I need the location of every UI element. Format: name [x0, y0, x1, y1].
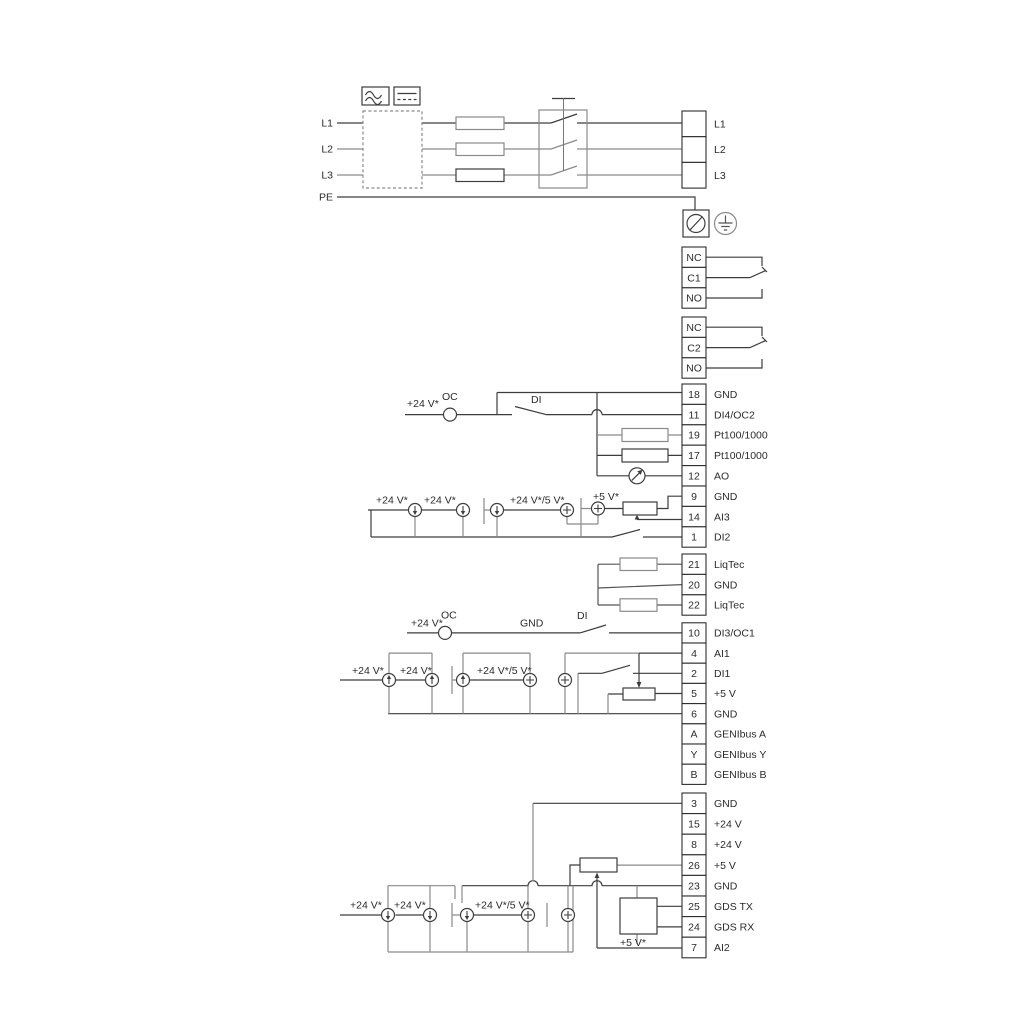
label-plus24v: +24 V* — [376, 495, 408, 507]
io3-wiring — [340, 803, 682, 952]
terminal-label: +5 V — [714, 860, 736, 872]
relay-terminal-number: C1 — [687, 272, 701, 284]
power-output-cell — [682, 111, 706, 137]
power-input-label: L2 — [321, 144, 333, 156]
terminal-label: DI2 — [714, 532, 731, 544]
wire-l2-l3 — [337, 140, 682, 175]
power-output-label: L1 — [714, 119, 726, 131]
dc-box-icon — [394, 87, 420, 105]
fuse-icon — [456, 117, 504, 130]
pe-terminal — [683, 210, 737, 237]
terminal-number: 1 — [691, 532, 697, 544]
terminal-number: 4 — [691, 648, 697, 660]
terminal-label: GND — [714, 389, 738, 401]
terminal-number: 10 — [688, 628, 700, 640]
fuses — [456, 117, 504, 182]
terminal-label: AI2 — [714, 942, 730, 954]
terminal-label: GENIbus A — [714, 729, 766, 741]
label-oc: OC — [442, 391, 458, 403]
liqtec-sensor-resistor-icon — [620, 599, 657, 612]
label-plus24v: +24 V* — [394, 900, 426, 912]
label-plus5v: +5 V* — [593, 491, 619, 503]
terminal-number: 17 — [688, 450, 700, 462]
label-plus24v: +24 V* — [350, 900, 382, 912]
label-plus24v-5v: +24 V*/5 V* — [477, 665, 532, 677]
terminal-number: 24 — [688, 922, 700, 934]
potentiometer-ai3 — [623, 502, 657, 515]
io3-gray-wires — [388, 803, 682, 952]
terminal-number: 18 — [688, 389, 700, 401]
pt100-resistor-icon — [622, 449, 668, 462]
terminal-number: 11 — [689, 409, 700, 421]
terminal-label: GDS RX — [714, 922, 754, 934]
power-output-cell — [682, 137, 706, 163]
terminal-number: 7 — [691, 942, 697, 954]
terminal-label: Pt100/1000 — [714, 450, 768, 462]
terminal-label: GND — [714, 798, 738, 810]
terminal-number: 25 — [688, 901, 700, 913]
terminal-label: AI3 — [714, 511, 730, 523]
terminal-number: Y — [690, 749, 697, 761]
relay-wiring — [706, 257, 767, 368]
terminal-label: GND — [714, 880, 738, 892]
terminal-label: GND — [714, 708, 738, 720]
ac-box-icon — [362, 87, 389, 105]
relay-terminal-number: NC — [686, 252, 702, 264]
ac-wave-icon — [366, 92, 382, 105]
annotations: +24 V* OC DI +24 V* +24 V* +24 V*/5 V* +… — [350, 391, 646, 949]
terminal-label: GND — [714, 579, 738, 591]
wire-l1-pe — [337, 99, 695, 211]
terminal-label: AI1 — [714, 648, 730, 660]
terminal-number: 2 — [691, 668, 697, 680]
converter-symbol — [362, 87, 422, 188]
pe-screw-slot — [690, 217, 703, 231]
terminal-label: DI4/OC2 — [714, 409, 755, 421]
power-output-cell — [682, 162, 706, 188]
terminal-label: DI1 — [714, 668, 731, 680]
terminal-number: 8 — [691, 839, 697, 851]
terminal-number: 26 — [688, 860, 700, 872]
terminal-number: A — [690, 729, 697, 741]
power-input-label: L1 — [321, 118, 333, 130]
label-plus24v: +24 V* — [424, 495, 456, 507]
label-plus24v-5v: +24 V*/5 V* — [510, 495, 565, 507]
power-output-label: L3 — [714, 170, 726, 182]
pt100-resistor-icon — [622, 429, 668, 442]
gds-sensor-box — [620, 898, 657, 934]
relay-terminal-number: NO — [686, 293, 702, 305]
terminal-label: LiqTec — [714, 600, 744, 612]
power-input-label: L3 — [321, 170, 333, 182]
label-plus24v: +24 V* — [352, 665, 384, 677]
terminal-label: AO — [714, 471, 729, 483]
label-plus24v-5v: +24 V*/5 V* — [475, 900, 530, 912]
earth-glyph — [719, 216, 733, 231]
open-collector-icon — [439, 626, 452, 639]
terminal-number: 14 — [688, 511, 700, 523]
potentiometer-ai2 — [580, 858, 617, 872]
terminal-label: +5 V — [714, 688, 736, 700]
terminal-label: GND — [714, 491, 738, 503]
relay-terminal-number: NO — [686, 363, 702, 375]
fuse-icon — [456, 143, 504, 156]
fuse-icon — [456, 169, 504, 182]
liqtec-wiring — [598, 558, 682, 611]
terminal-number: 15 — [688, 819, 700, 831]
terminal-label: +24 V — [714, 819, 742, 831]
relay-terminal-number: C2 — [687, 342, 701, 354]
terminal-number: 12 — [688, 471, 700, 483]
filter-dashed-box — [363, 111, 422, 188]
terminal-number: 20 — [688, 579, 700, 591]
terminal-label: +24 V — [714, 839, 742, 851]
label-plus24v: +24 V* — [411, 618, 443, 630]
terminal-number: 23 — [688, 880, 700, 892]
label-plus5v: +5 V* — [620, 937, 646, 949]
io3-dark-wires — [340, 803, 682, 948]
terminal-label: GDS TX — [714, 901, 753, 913]
terminal-number: 19 — [688, 430, 700, 442]
terminal-number: 6 — [691, 708, 697, 720]
label-di: DI — [577, 610, 588, 622]
terminal-label: DI3/OC1 — [714, 628, 755, 640]
terminal-label: GENIbus B — [714, 769, 767, 781]
terminal-number: B — [690, 769, 697, 781]
terminal-number: 3 — [691, 798, 697, 810]
wiring-diagram-canvas: +24 V* OC DI +24 V* +24 V* +24 V*/5 V* +… — [0, 0, 1024, 1024]
terminal-number: 22 — [688, 600, 700, 612]
label-gnd: GND — [520, 618, 544, 630]
io1-gray-wires — [415, 435, 682, 537]
terminal-number: 5 — [691, 688, 697, 700]
terminal-label: Pt100/1000 — [714, 430, 768, 442]
potentiometer-wiper-arrow — [595, 873, 600, 879]
terminal-label: LiqTec — [714, 559, 744, 571]
label-oc: OC — [441, 610, 457, 622]
relay-terminal-number: NC — [686, 322, 702, 334]
potentiometer-ai1 — [623, 688, 655, 700]
power-input-label: PE — [319, 192, 333, 204]
stamped-elements: L1L2L3PEL1L2L3NCC1NONCC2NO18GND11DI4/OC2… — [319, 111, 768, 958]
open-collector-icon — [444, 408, 457, 421]
label-plus24v: +24 V* — [407, 398, 439, 410]
potentiometer-wiper-arrow — [637, 682, 642, 688]
terminal-label: GENIbus Y — [714, 749, 766, 761]
terminal-number: 21 — [688, 559, 700, 571]
mains-wiring — [337, 99, 695, 211]
power-output-label: L2 — [714, 144, 726, 156]
liqtec-sensor-resistor-icon — [620, 558, 657, 571]
label-di: DI — [531, 394, 542, 406]
terminal-number: 9 — [691, 491, 697, 503]
